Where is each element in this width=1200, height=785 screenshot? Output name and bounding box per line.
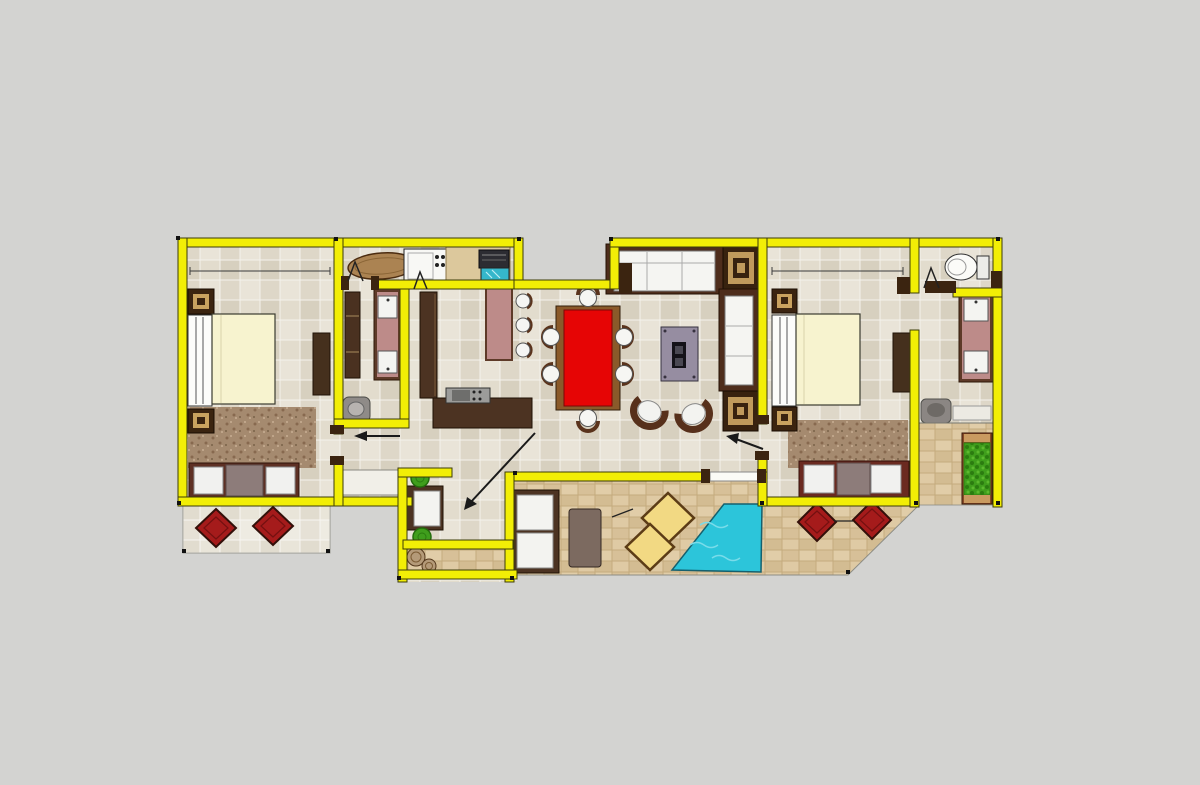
coffee-table-dot4 bbox=[693, 376, 696, 379]
wardrobe bbox=[345, 292, 360, 378]
corner-mark-10 bbox=[510, 576, 514, 580]
stove-panel bbox=[452, 390, 470, 401]
kitchen-bar bbox=[486, 288, 512, 360]
washer-knob-3 bbox=[435, 263, 439, 267]
corner-mark-15 bbox=[996, 501, 1000, 505]
patio-bench-white bbox=[953, 406, 991, 420]
vanity-right-tap-top bbox=[975, 301, 978, 304]
bed-right bbox=[796, 314, 860, 405]
wall-closet-bottom bbox=[334, 419, 409, 428]
wall-bath2-left-lower bbox=[910, 330, 919, 507]
planter-greenery bbox=[964, 443, 990, 495]
door-jamb-terrace-right bbox=[757, 469, 766, 483]
floor-plan-page bbox=[0, 0, 1200, 785]
entry-armchair-cushion bbox=[414, 491, 440, 526]
nightstand-right-top-core bbox=[781, 297, 788, 304]
dining-chair-top bbox=[580, 290, 597, 307]
headboard-left-bed bbox=[188, 315, 212, 406]
side-table-ornate-top-core bbox=[737, 263, 745, 273]
bar-stool-1 bbox=[516, 294, 530, 308]
nightstand-left-top-core bbox=[197, 298, 205, 305]
coffee-table-dot3 bbox=[664, 376, 667, 379]
corner-mark-5 bbox=[334, 237, 338, 241]
washer bbox=[404, 249, 446, 283]
wall-laundry-bottom bbox=[378, 280, 514, 289]
wall-terrace-left bbox=[505, 472, 514, 582]
wall-entry-stub bbox=[398, 468, 452, 477]
patio-stool-gray-top bbox=[927, 403, 945, 417]
corner-mark-9 bbox=[397, 576, 401, 580]
door-leaf-bedroom2-bath bbox=[897, 277, 910, 294]
door-jamb-bedroom2-top bbox=[755, 415, 769, 424]
dresser-left-bedroom bbox=[313, 333, 330, 395]
coffee-table-tray-item1 bbox=[675, 346, 683, 354]
loveseat-left-cushion-r bbox=[266, 467, 295, 494]
nightstand-left-bottom-core bbox=[197, 417, 205, 424]
wall-bedroom1-right-upper bbox=[334, 238, 343, 434]
stove-knob-2 bbox=[479, 391, 482, 394]
loveseat-left-cushion-l bbox=[194, 467, 223, 494]
corner-mark-7 bbox=[182, 549, 186, 553]
wall-closet-right bbox=[400, 289, 409, 428]
wall-bedroom1-right-lower bbox=[334, 464, 343, 506]
laundry-appliance bbox=[479, 250, 509, 268]
corner-mark-4 bbox=[996, 237, 1000, 241]
kitchen-counter-vertical bbox=[420, 292, 437, 398]
stove-knob-3 bbox=[473, 398, 476, 401]
side-table-ornate-bottom-core bbox=[737, 407, 744, 415]
dining-table-top bbox=[564, 310, 612, 406]
dining-chair-left2 bbox=[543, 366, 560, 383]
door-jamb-laundry-right bbox=[371, 276, 379, 290]
corner-mark-14 bbox=[846, 570, 850, 574]
dining-chair-right2 bbox=[616, 366, 633, 383]
planter-cap-bottom bbox=[964, 495, 990, 503]
corner-mark-3 bbox=[609, 237, 613, 241]
headboard-right-bed bbox=[772, 315, 796, 406]
corner-mark-12 bbox=[760, 501, 764, 505]
terrace-sofa-cushion-2 bbox=[517, 533, 553, 568]
coffee-table-dot2 bbox=[693, 330, 696, 333]
vanity-right-tap-bottom bbox=[975, 369, 978, 372]
wall-living-bedroom2-upper bbox=[758, 238, 767, 424]
loveseat-right-cushion-l bbox=[804, 465, 834, 493]
vanity-left-tap-bottom bbox=[387, 368, 390, 371]
corner-mark-13 bbox=[914, 501, 918, 505]
door-jamb-terrace-left bbox=[701, 469, 710, 483]
wall-bedroom1-bottom bbox=[178, 497, 412, 506]
stove-knob-1 bbox=[473, 391, 476, 394]
wall-entry-mid bbox=[403, 540, 513, 549]
sofa-right-seat bbox=[725, 296, 753, 385]
coffee-table-dot1 bbox=[664, 330, 667, 333]
terrace-sofa-cushion-1 bbox=[517, 495, 553, 530]
coffee-table-tray-item2 bbox=[675, 358, 683, 366]
entry-step bbox=[341, 470, 403, 495]
wall-top-right bbox=[610, 238, 1002, 247]
loveseat-right-console bbox=[837, 463, 870, 495]
door-jamb-bedroom2-bottom bbox=[755, 451, 769, 460]
toilet-left-seat bbox=[348, 402, 364, 416]
stove-knob-4 bbox=[479, 398, 482, 401]
wall-left bbox=[178, 238, 187, 506]
door-jamb-laundry-left bbox=[341, 276, 349, 290]
bar-stool-3 bbox=[516, 343, 530, 357]
bar-stool-2 bbox=[516, 318, 530, 332]
wall-top-left bbox=[178, 238, 523, 247]
door-jamb-bedroom1-top bbox=[330, 425, 344, 434]
dining-chair-right1 bbox=[616, 329, 633, 346]
wall-terrace-top bbox=[505, 472, 712, 481]
door-jamb-bedroom1-bottom bbox=[330, 456, 344, 465]
washer-knob-1 bbox=[435, 255, 439, 259]
loveseat-right-cushion-r bbox=[871, 465, 901, 493]
plan-layer bbox=[0, 0, 1200, 785]
sliding-door-terrace bbox=[710, 472, 760, 481]
nightstand-right-bottom-core bbox=[781, 414, 788, 421]
door-jamb-living-entry bbox=[619, 263, 632, 293]
wall-entry-bottom bbox=[398, 570, 517, 579]
dining-chair-left1 bbox=[543, 329, 560, 346]
corner-mark-1 bbox=[176, 236, 180, 240]
toilet-right-bowl bbox=[945, 254, 977, 280]
corner-mark-11 bbox=[513, 471, 517, 475]
terrace-table bbox=[569, 509, 601, 567]
dresser-right-bedroom bbox=[893, 333, 911, 392]
washer-knob-2 bbox=[441, 255, 445, 259]
floor-plan-canvas bbox=[0, 0, 1200, 785]
dining-chair-bottom bbox=[580, 410, 597, 427]
bath2-counter-dark bbox=[925, 281, 956, 293]
wall-step-horiz bbox=[514, 280, 619, 289]
wall-bath2-horizontal bbox=[953, 288, 1002, 297]
door-jamb-bath2-right bbox=[991, 271, 1002, 288]
toilet-right-tank bbox=[977, 256, 989, 279]
loveseat-left-console bbox=[226, 465, 263, 496]
corner-mark-6 bbox=[177, 501, 181, 505]
corner-mark-8 bbox=[326, 549, 330, 553]
wall-entry-left bbox=[398, 468, 407, 582]
wall-bath2-left-upper bbox=[910, 238, 919, 293]
corner-mark-2 bbox=[517, 237, 521, 241]
wall-bedroom2-bottom bbox=[758, 497, 919, 506]
planter-cap-top bbox=[964, 434, 990, 442]
vanity-left-tap-top bbox=[387, 299, 390, 302]
washer-knob-4 bbox=[441, 263, 445, 267]
